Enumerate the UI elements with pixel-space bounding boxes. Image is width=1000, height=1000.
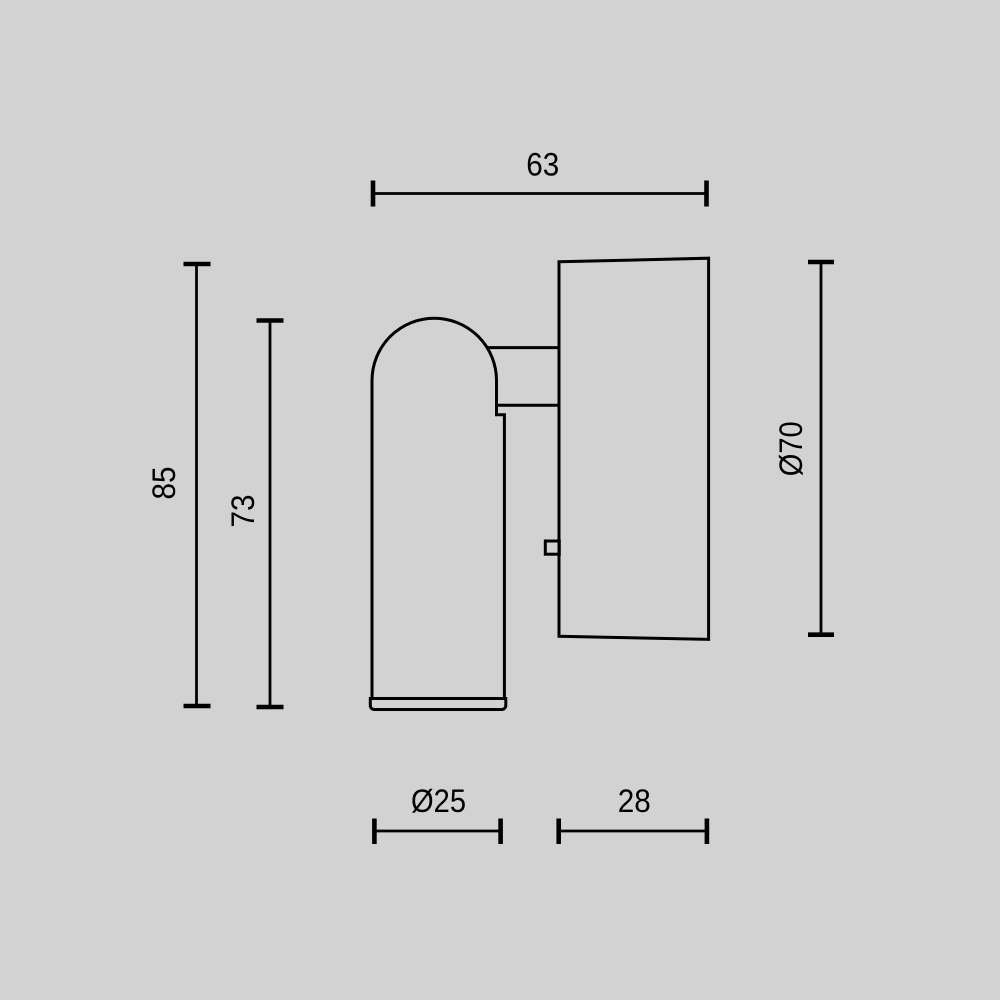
svg-text:Ø70: Ø70 <box>773 421 809 476</box>
svg-text:73: 73 <box>225 495 261 528</box>
svg-text:28: 28 <box>618 783 651 819</box>
svg-text:85: 85 <box>146 467 182 500</box>
svg-text:Ø25: Ø25 <box>411 783 466 819</box>
svg-text:63: 63 <box>526 147 559 183</box>
